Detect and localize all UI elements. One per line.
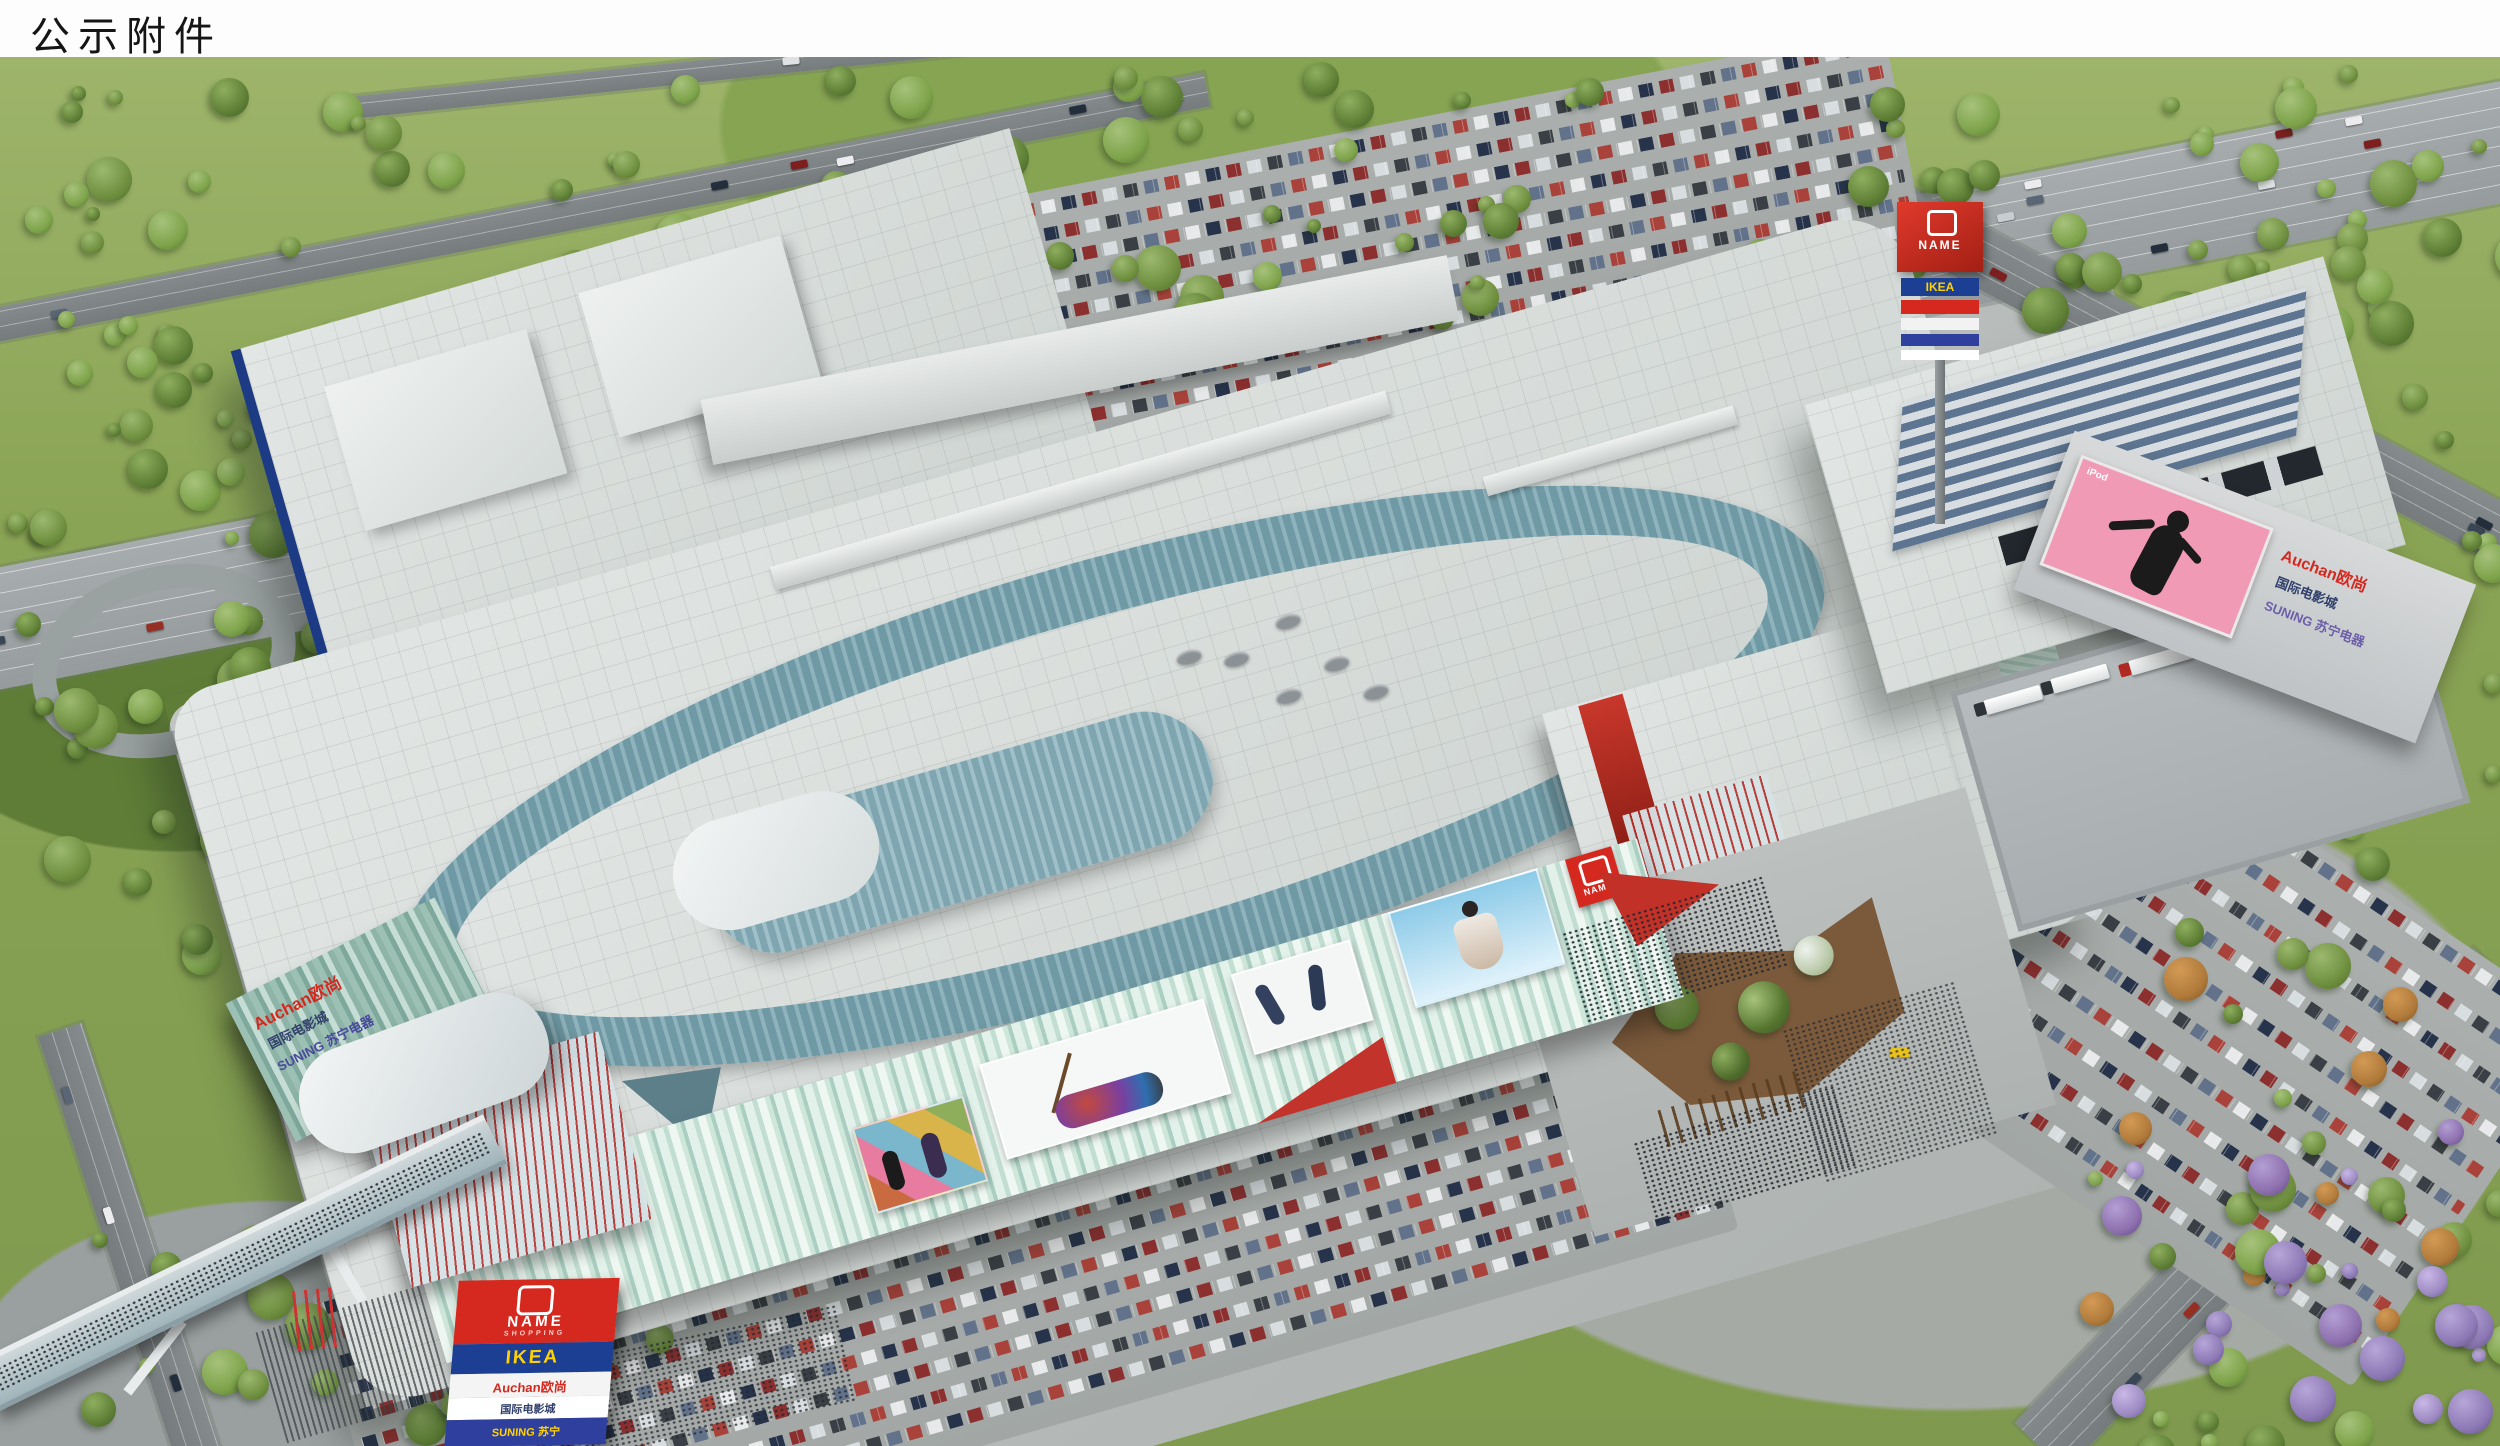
tree [2435,1304,2478,1347]
tree [148,210,188,250]
pylon-auchan-text: Auchan欧尚 [449,1376,612,1398]
tree [35,697,54,716]
tree [366,115,402,151]
tree [81,1392,116,1427]
semi-truck [2050,663,2110,693]
woman-dress [1451,910,1509,974]
pylon-auchan-panel: Auchan欧尚 [449,1372,612,1399]
tree [217,458,245,486]
tree [2472,139,2487,154]
tree [2240,143,2279,182]
tree [2484,673,2500,694]
tree [2126,1161,2144,1179]
tree [826,66,856,96]
tree [405,1404,447,1446]
tree [2335,1411,2374,1446]
tree [374,151,410,187]
model-figure [1253,982,1287,1027]
tree [2472,1348,2486,1362]
tree [1304,62,1339,97]
tree [2052,213,2087,248]
truck-cab [2040,680,2054,696]
tree [156,372,192,408]
tree [54,688,99,733]
tree [1046,242,1074,270]
tree [92,1232,108,1248]
hpylon-name-cube: NAME [1897,202,1983,272]
ipod-label: iPod [2085,466,2109,484]
tree [1870,87,1905,122]
tree [2190,132,2214,156]
tree [67,360,93,386]
tree [2436,431,2454,449]
truck-cab [2118,662,2132,678]
tree [2438,1119,2464,1145]
tree [2413,1394,2443,1424]
tree [2277,938,2309,970]
tree [1470,275,1485,290]
tree [30,509,67,546]
tree [2486,1190,2500,1217]
tree [2119,1112,2152,1145]
tree [58,311,75,328]
tree [2360,1336,2405,1381]
tree [2417,1266,2448,1297]
tree [2201,1434,2218,1446]
shopping-bag-icon [516,1285,555,1316]
handbag-billboard [979,998,1231,1159]
tree [119,316,138,335]
tree [2246,1425,2285,1446]
tree [890,76,933,119]
tree [1112,255,1139,282]
hpylon-pole [1935,360,1945,524]
model-figure [1307,964,1326,1011]
tree [2122,274,2142,294]
tree [2474,544,2500,583]
entry-pylon-sign: NAME SHOPPING IKEA Auchan欧尚 国际电影城 SUNING… [444,1278,619,1446]
tree [193,363,213,383]
tree [351,116,366,131]
tree [188,170,211,193]
pylon-cinema-panel: 国际电影城 [447,1395,610,1420]
tree [551,179,573,201]
tree [2383,987,2418,1022]
pylon-name-panel: NAME SHOPPING [453,1278,619,1345]
tree [2423,218,2462,257]
fashion-collage-billboard [852,1096,989,1214]
tree [127,347,158,378]
tree [2290,1376,2336,1422]
tree [1237,109,1254,126]
tree [2193,1334,2224,1365]
tree [182,924,213,955]
tree [2341,1168,2358,1185]
tree [238,1369,269,1400]
tree [2188,240,2208,260]
hpylon-ikea-panel: IKEA [1901,278,1979,296]
tree [281,237,301,257]
tree [1454,92,1471,109]
tree [2102,1196,2142,1236]
tree [61,101,83,123]
tree [2137,1434,2176,1446]
tree [124,868,152,896]
tree [128,689,163,724]
tree [2149,1243,2176,1270]
tree [2264,1241,2307,1284]
tree [2082,252,2122,292]
pylon-cinema-text: 国际电影城 [447,1399,609,1418]
tree [671,75,700,104]
tree [2302,1131,2326,1155]
tree [2448,1389,2493,1434]
tree [1440,210,1467,237]
tree [2175,918,2204,947]
tree [1114,66,1138,90]
tree [2305,943,2351,989]
pylon-suning-panel: SUNING 苏宁 [444,1417,607,1446]
tree [25,206,53,234]
tree [2112,1384,2146,1418]
hpylon-brand-bar [1901,318,1979,330]
tree [152,810,176,834]
public-notice-page: 公示附件 IKEA 宜家家居 [0,0,2500,1446]
tree [2485,765,2500,783]
tree [107,423,121,437]
tree [2356,847,2390,881]
tree [87,157,132,202]
jumping-models-billboard [1231,939,1374,1055]
model-figure [919,1131,949,1180]
tree [2153,1411,2169,1427]
tree [8,513,28,533]
hpylon-brand-bar [1901,300,1979,314]
tree [2376,1308,2400,1332]
tree [2275,87,2317,129]
pylon-suning-text: SUNING 苏宁 [445,1422,607,1441]
hpylon-brand-bar [1901,350,1979,360]
pylon-ikea-panel: IKEA [451,1342,614,1375]
tree [2317,179,2336,198]
tree [1135,245,1181,291]
tree [1334,138,1358,162]
tree [1103,117,1149,163]
tree [81,231,104,254]
tree [428,152,465,189]
tree [2331,246,2366,281]
header-bar: 公示附件 [0,0,2500,57]
dancer-arm [2109,519,2155,530]
tree [1395,233,1414,252]
tree [120,409,153,442]
tree [1178,117,1203,142]
tree [1576,78,1604,106]
tree [2382,1198,2406,1222]
tree [2316,1182,2339,1205]
tree [232,429,252,449]
tree [2080,1292,2114,1326]
tree [1969,160,2000,191]
tree [2462,531,2482,551]
tree [1263,205,1281,223]
tree [44,836,91,883]
tree [2402,384,2428,410]
model-figure [880,1149,907,1192]
tree [86,207,100,221]
highway-pylon-sign: NAME IKEA [1893,202,1989,524]
tree [71,86,86,101]
pylon-shopping-text: SHOPPING [454,1329,615,1339]
red-pole-sculptures [292,1287,342,1351]
tree [2164,957,2208,1001]
page-title: 公示附件 [30,4,222,62]
tree [217,410,234,427]
tree [1141,76,1183,118]
tree [2495,233,2500,280]
semi-truck [1983,685,2043,715]
tree [64,182,89,207]
tree [1336,90,1374,128]
tree [2198,1411,2219,1432]
aerial-rendering: IKEA 宜家家居 [0,57,2500,1446]
hpylon-name-text: NAME [1897,238,1983,252]
tree [2370,160,2417,207]
tree [2088,1171,2103,1186]
truck-cab [1973,702,1987,718]
tree [1957,93,2000,136]
tree [2257,218,2289,250]
tree [180,470,221,511]
tree [2022,287,2069,334]
shopping-bag-icon [1927,210,1957,236]
tree [2223,1004,2243,1024]
tree [214,601,250,637]
tree [1307,219,1321,233]
tree [2340,65,2358,83]
tree [1253,262,1282,291]
tree [108,90,123,105]
hpylon-ikea-text: IKEA [1926,280,1955,294]
tree [2342,1263,2358,1279]
tree [154,326,193,365]
tree [2351,1051,2387,1087]
tree [2274,1089,2292,1107]
tree [2164,97,2180,113]
tree [2369,301,2414,346]
tree [128,449,168,489]
tree [2307,1264,2326,1283]
tree [613,151,640,178]
tree [2421,1228,2459,1266]
bag-body [1052,1068,1167,1132]
tree [2412,150,2444,182]
tree [1848,166,1889,207]
tree [210,78,249,117]
tree [2319,1304,2362,1347]
tree [225,531,239,545]
hpylon-brand-bar [1901,334,1979,346]
tree [2248,1154,2290,1196]
tree [16,612,41,637]
pylon-ikea-text: IKEA [451,1346,614,1371]
tree [1483,203,1519,239]
